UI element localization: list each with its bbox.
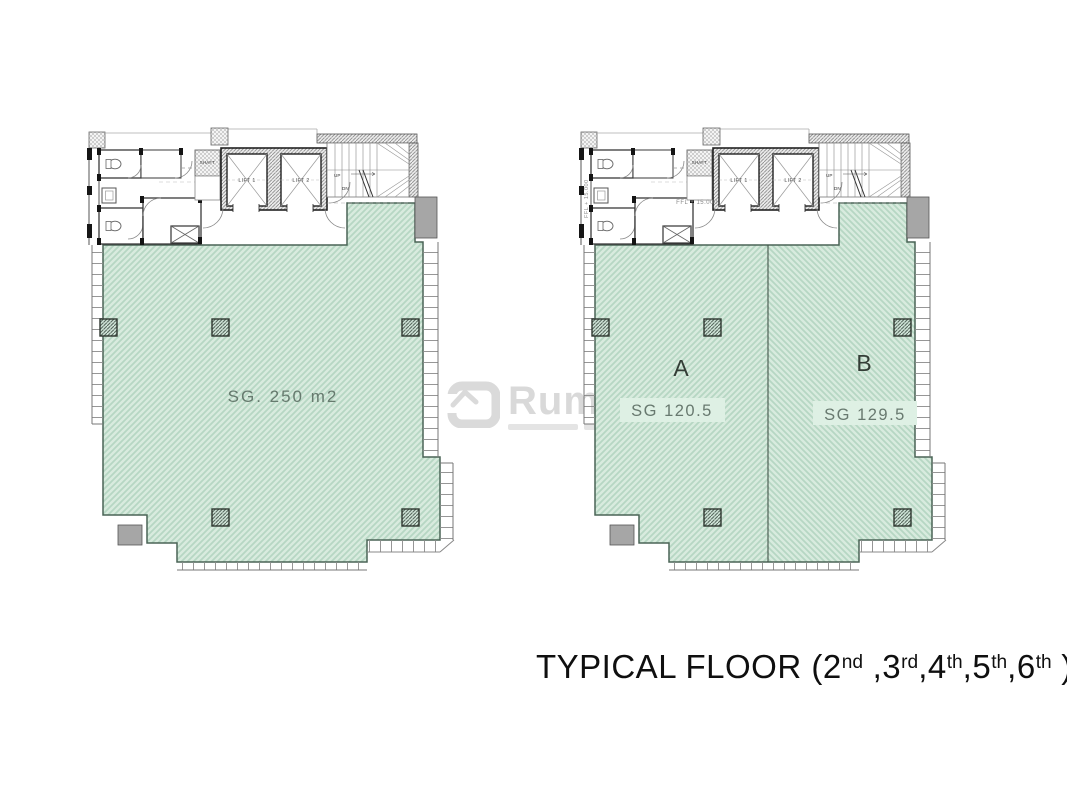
area-label-left: SG. 250 m2 [228, 387, 339, 406]
floor-title: TYPICAL FLOOR (2nd ,3rd,4th,5th,6th ) [536, 648, 1067, 686]
title-ordinal: nd [842, 652, 863, 673]
title-part: ,3 [863, 648, 901, 685]
unit-a-area-label: SG 120.5 [631, 402, 713, 420]
title-part: ,6 [1007, 648, 1036, 685]
title-part: ,5 [963, 648, 992, 685]
title-ordinal: th [1036, 652, 1052, 673]
open-area [103, 203, 440, 562]
floor-plan-right: A B SG 120.5 SG 129.5 FFL + 15.000 FFL +… [579, 128, 946, 570]
title-part: ,4 [918, 648, 947, 685]
title-part: TYPICAL FLOOR (2 [536, 648, 842, 685]
title-part: ) [1052, 648, 1067, 685]
title-ordinal: th [947, 652, 963, 673]
ffl-level-label: FFL + 15.000 [676, 200, 718, 206]
open-area-unit-b [768, 203, 932, 562]
floorplan-sheet: Rumain [0, 0, 1067, 800]
floor-plan-left: SG. 250 m2 [87, 128, 454, 570]
unit-a-label: A [673, 355, 689, 381]
title-ordinal: rd [901, 652, 918, 673]
unit-b-area-label: SG 129.5 [824, 406, 906, 424]
ffl-level-label-side: FFL + 15.000 [584, 179, 590, 218]
title-ordinal: th [991, 652, 1007, 673]
unit-b-label: B [856, 350, 871, 376]
